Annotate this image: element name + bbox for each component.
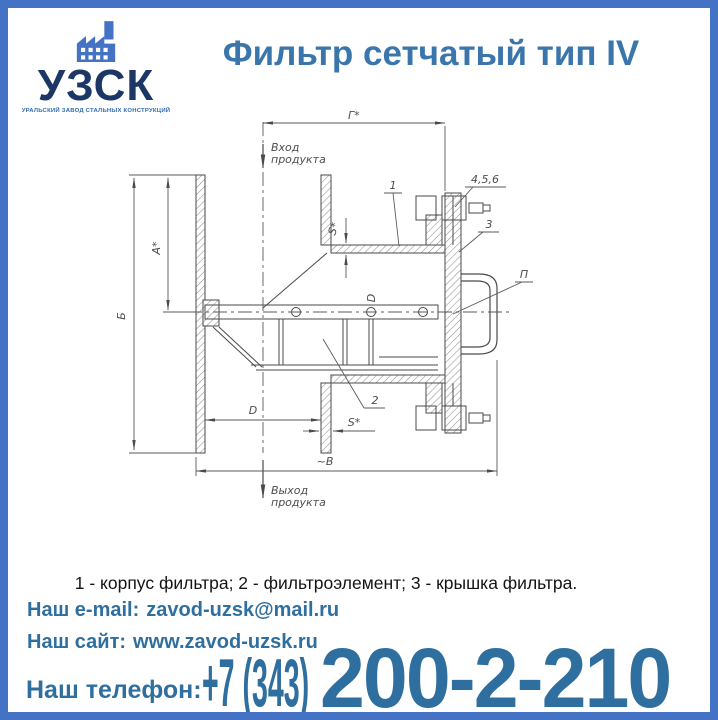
logo-abbr: УЗСК: [15, 66, 177, 106]
dim-label-g: Г*: [348, 109, 360, 122]
email-value: zavod-uzsk@mail.ru: [146, 599, 339, 621]
dim-label-s-wall: S*: [325, 220, 342, 237]
cover-handle: [461, 274, 497, 354]
dim-label-b: Б: [115, 312, 128, 320]
dim-label-d-outlet: D: [249, 404, 257, 417]
dim-label-d-inner: D: [365, 294, 378, 302]
email-label: Наш e-mail:: [27, 599, 139, 621]
dim-label-width: ~В: [317, 455, 334, 468]
outlet-label-2: продукта: [271, 496, 326, 509]
company-logo: УЗСК УРАЛЬСКИЙ ЗАВОД СТАЛЬНЫХ КОНСТРУКЦИ…: [15, 10, 177, 114]
phone-label: Наш телефон:: [26, 676, 202, 705]
page-frame: УЗСК УРАЛЬСКИЙ ЗАВОД СТАЛЬНЫХ КОНСТРУКЦИ…: [0, 0, 718, 720]
technical-drawing: Г* Вход продукта Выход продукта А* Б D D…: [113, 108, 703, 568]
site-label: Наш сайт:: [27, 631, 126, 653]
centerlines: [188, 122, 513, 453]
phone-number: 200-2-210: [320, 636, 670, 720]
phone-prefix: +7 (343): [202, 649, 309, 717]
dim-label-a: А*: [150, 241, 163, 256]
filter-element: [205, 253, 438, 370]
dim-label-s-outlet: S*: [348, 416, 361, 429]
inlet-label-2: продукта: [271, 153, 326, 166]
email-line: Наш e-mail:zavod-uzsk@mail.ru: [27, 599, 339, 622]
part-label-handle: П: [520, 268, 528, 281]
part-label-2: 2: [372, 394, 379, 407]
parts-caption: 1 - корпус фильтра; 2 - фильтроэлемент; …: [8, 573, 710, 594]
part-label-456: 4,5,6: [471, 173, 499, 186]
page-title: Фильтр сетчатый тип IV: [188, 34, 674, 74]
part-label-1: 1: [390, 179, 397, 192]
part-label-3: 3: [486, 218, 493, 231]
